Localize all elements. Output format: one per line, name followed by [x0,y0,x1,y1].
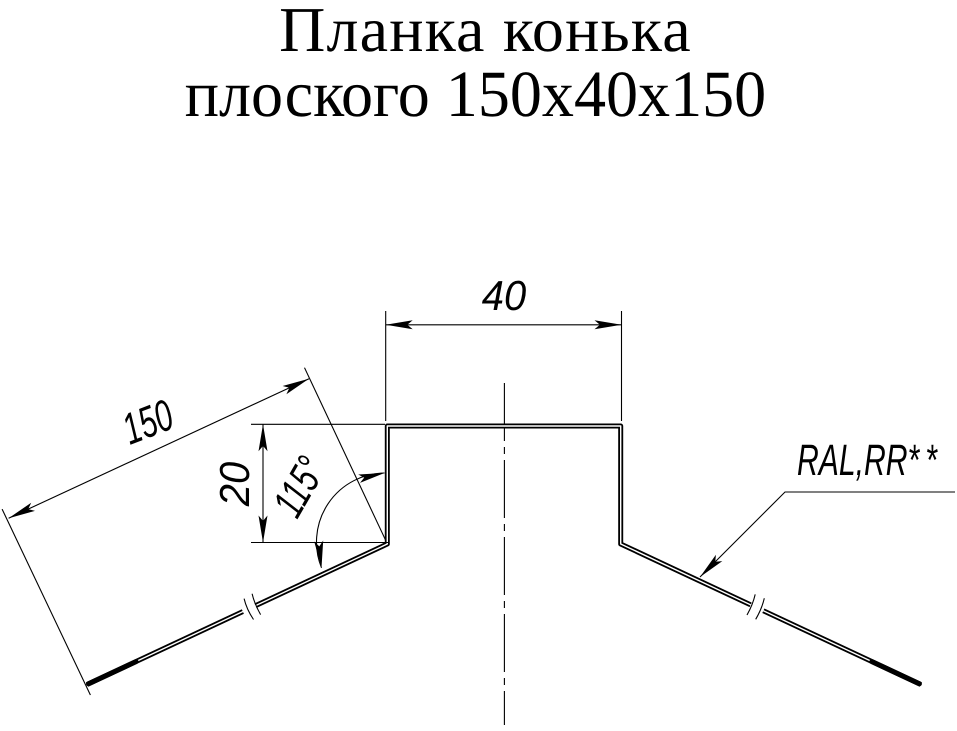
svg-text:40: 40 [482,272,527,319]
svg-text:RAL,RR* *: RAL,RR* * [797,436,938,485]
svg-text:115°: 115° [264,449,336,525]
svg-text:20: 20 [211,461,258,507]
svg-text:150: 150 [116,391,181,455]
